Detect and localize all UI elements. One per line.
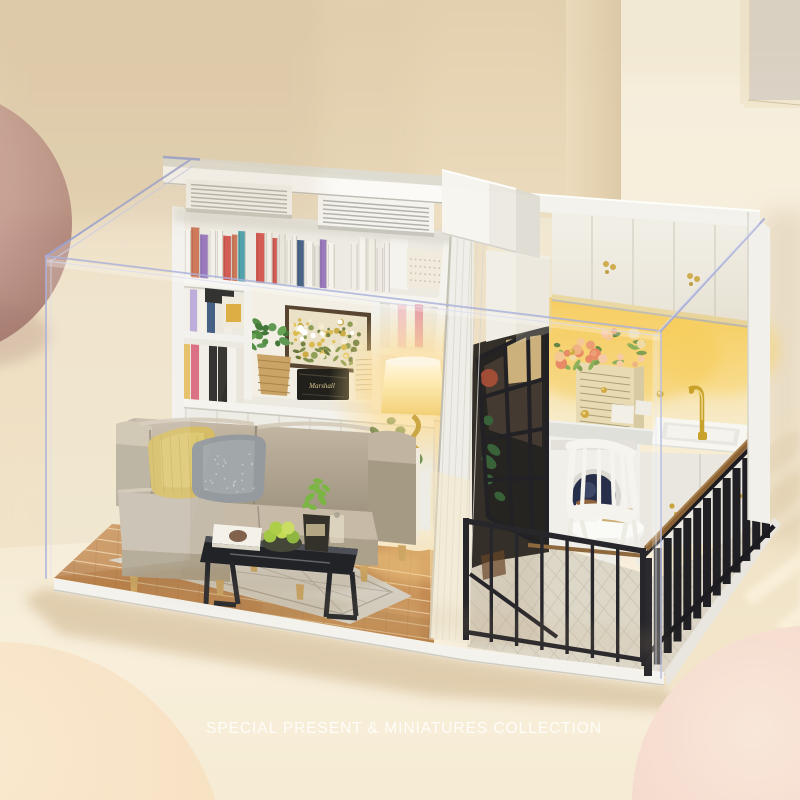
svg-text:SPECIAL PRESENT & MINIATURES C: SPECIAL PRESENT & MINIATURES COLLECTION	[206, 720, 602, 737]
